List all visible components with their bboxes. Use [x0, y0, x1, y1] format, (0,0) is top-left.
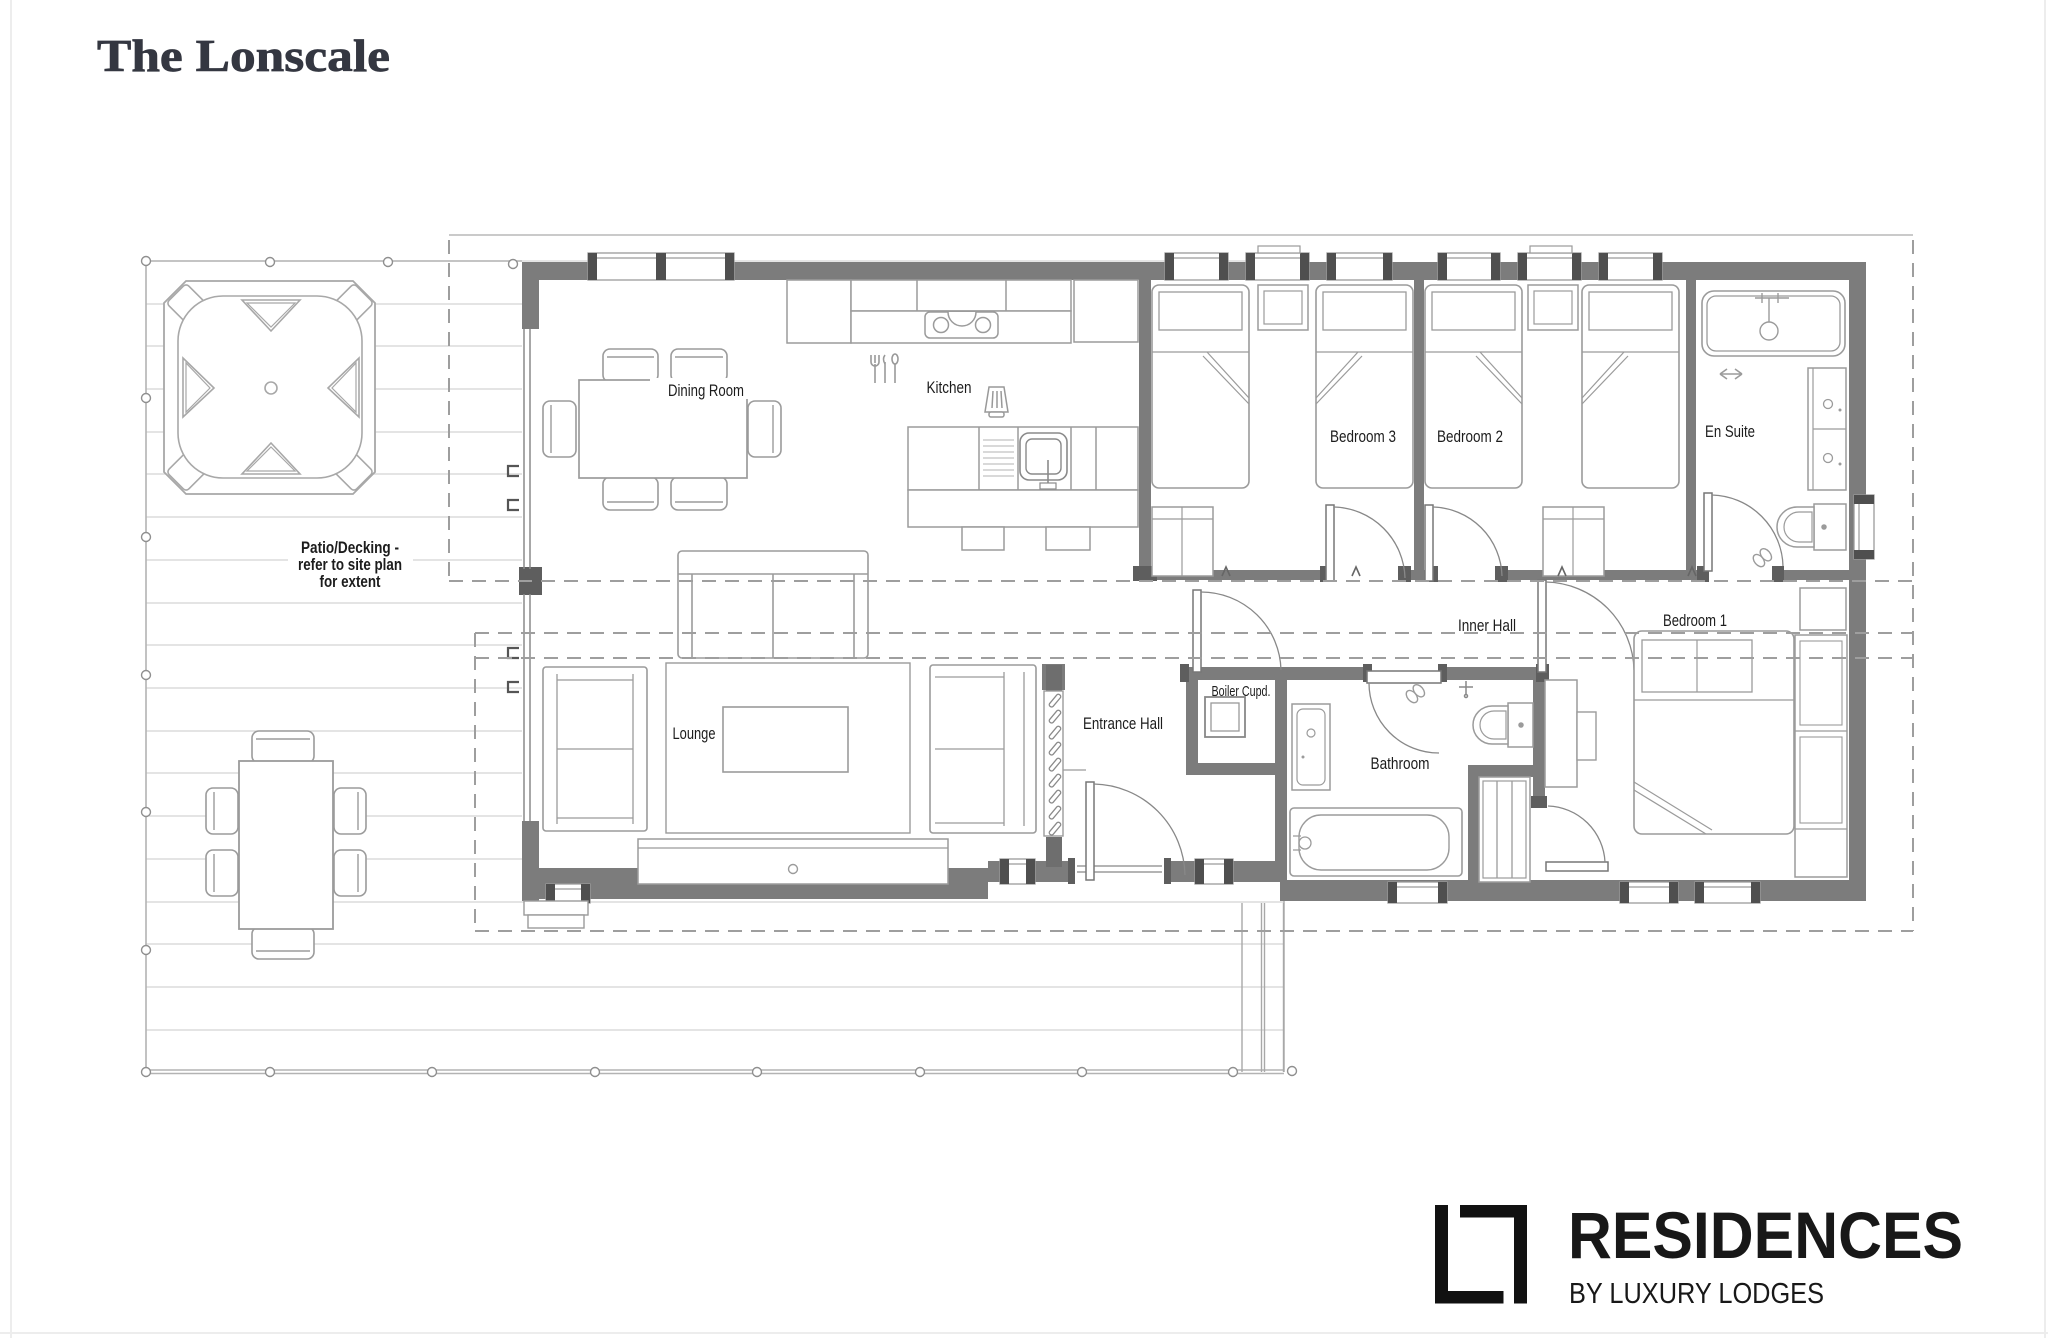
svg-text:En Suite: En Suite — [1705, 422, 1755, 441]
svg-text:Bedroom 2: Bedroom 2 — [1437, 427, 1503, 446]
svg-text:The Lonscale: The Lonscale — [97, 30, 390, 81]
svg-text:BY LUXURY LODGES: BY LUXURY LODGES — [1569, 1278, 1824, 1310]
svg-text:Bedroom 1: Bedroom 1 — [1663, 611, 1727, 630]
svg-text:RESIDENCES: RESIDENCES — [1568, 1198, 1963, 1272]
svg-text:Boiler Cupd.: Boiler Cupd. — [1212, 683, 1271, 700]
svg-text:Entrance Hall: Entrance Hall — [1083, 714, 1163, 733]
svg-text:Dining Room: Dining Room — [668, 381, 744, 400]
svg-text:Bathroom: Bathroom — [1371, 754, 1430, 773]
svg-text:for extent: for extent — [320, 572, 381, 591]
svg-text:Inner Hall: Inner Hall — [1458, 616, 1516, 635]
svg-text:Bedroom 3: Bedroom 3 — [1330, 427, 1396, 446]
svg-text:Lounge: Lounge — [673, 724, 716, 743]
svg-text:Kitchen: Kitchen — [927, 378, 972, 397]
